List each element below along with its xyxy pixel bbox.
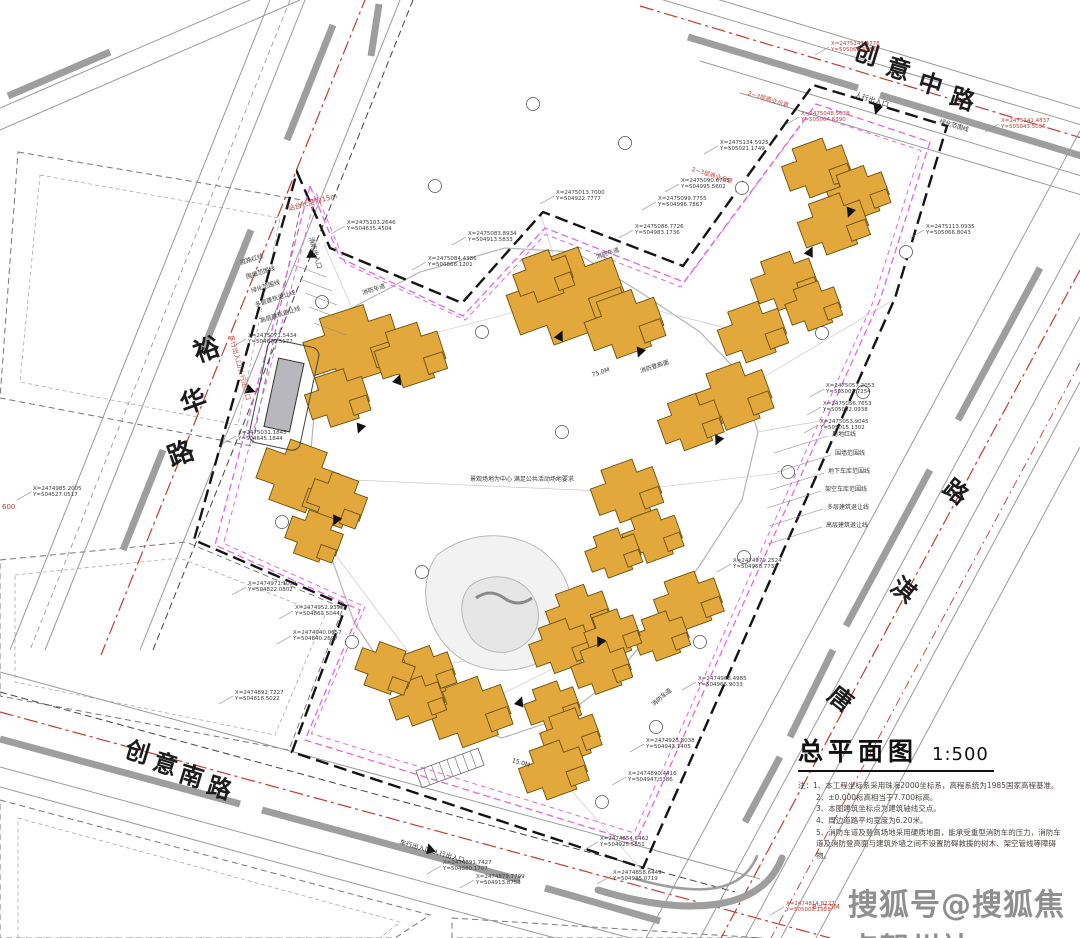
survey-point-circle bbox=[527, 98, 540, 111]
survey-point-circle bbox=[650, 721, 663, 734]
coord-label: X=2474890.4416Y=504947.3386 bbox=[628, 771, 677, 784]
leader-line bbox=[619, 230, 633, 238]
leader-line bbox=[774, 436, 828, 453]
coord-label: X=2474985.2005Y=504527.0517 bbox=[33, 486, 82, 499]
leader-line bbox=[770, 473, 824, 490]
survey-point-circle bbox=[416, 566, 429, 579]
leader-line bbox=[768, 527, 822, 544]
leader-line bbox=[682, 682, 696, 690]
parking-group bbox=[416, 748, 484, 787]
parcel-inner-line bbox=[18, 818, 400, 938]
annotation-label: B=7.5M bbox=[812, 903, 840, 911]
coord-label: X=2475083.8934Y=504913.5833 bbox=[468, 231, 517, 244]
leader-line bbox=[460, 880, 474, 888]
coord-label: X=2475147.4778Y=505068.3583 bbox=[831, 41, 880, 54]
leader-line bbox=[807, 407, 821, 415]
drawing-title: 总平面图 bbox=[798, 732, 918, 768]
coord-label: X=2475031.1845Y=504645.1844 bbox=[238, 430, 287, 443]
leader-line bbox=[232, 587, 246, 595]
coord-label: X=2475056.7653Y=505002.0938 bbox=[823, 401, 872, 414]
survey-point-circle bbox=[782, 466, 795, 479]
leader-line bbox=[910, 230, 924, 238]
legend-label: 高层建筑退让线 bbox=[826, 520, 868, 529]
legend-label: 架空车库范围线 bbox=[825, 484, 867, 493]
coord-label: X=2474891.7427Y=504880.1707 bbox=[443, 860, 492, 873]
leader-line bbox=[769, 509, 823, 526]
legend-label: 地下车库范围线 bbox=[828, 466, 870, 475]
coord-label: X=2475141.4837Y=505043.5055 bbox=[1001, 118, 1050, 131]
coord-label: X=2475071.5434Y=504679.5172 bbox=[248, 333, 297, 346]
annotation-label: 600 bbox=[2, 503, 15, 511]
leader-line bbox=[767, 491, 821, 508]
leader-line bbox=[331, 226, 345, 234]
leader-line bbox=[810, 389, 824, 397]
parking-slot-line bbox=[439, 762, 445, 779]
watermark: 搜狐号@搜狐焦点贺州站 bbox=[848, 880, 1080, 938]
coord-label: X=2475113.0935Y=505066.8043 bbox=[926, 224, 975, 237]
coord-label: X=2474854.6462Y=504925.5851 bbox=[600, 836, 649, 849]
construction-line bbox=[324, 244, 352, 308]
coord-label: X=2474952.9398Y=504863.5044 bbox=[295, 605, 344, 618]
survey-point-circle bbox=[900, 246, 913, 259]
coord-label: X=2475099.7755Y=504996.7867 bbox=[658, 196, 707, 209]
leader-line bbox=[412, 262, 426, 270]
entrance-arrow-icon bbox=[353, 423, 366, 436]
note-line: 2、±0.000标高相当于7.700标高。 bbox=[816, 792, 1062, 804]
leader-line bbox=[219, 696, 233, 704]
landscape-feature bbox=[462, 577, 539, 653]
coord-label: X=2474971.1092Y=504822.0802 bbox=[248, 581, 297, 594]
leader-line bbox=[452, 237, 466, 245]
leader-line bbox=[642, 202, 656, 210]
survey-point-circle bbox=[556, 426, 569, 439]
gatehouse bbox=[264, 358, 304, 432]
parking-slot-line bbox=[462, 754, 468, 771]
parcel-boundary bbox=[0, 800, 430, 938]
survey-point-circle bbox=[736, 182, 749, 195]
coord-label: X=2474979.2524Y=504960.7733 bbox=[733, 558, 782, 571]
parcel-boundary bbox=[452, 918, 762, 938]
drawing-notes: 注：1、本工程坐标系采用珠海2000坐标系，高程系统为1985国家高程基准。 2… bbox=[798, 780, 1062, 861]
road-line-edge bbox=[45, 0, 305, 650]
leader-line bbox=[815, 47, 829, 55]
survey-point-circle bbox=[429, 180, 442, 193]
road-line-band bbox=[880, 95, 1080, 157]
leader-line bbox=[584, 842, 598, 850]
leader-line bbox=[17, 492, 31, 500]
road-line-edge bbox=[0, 0, 300, 130]
coord-label: X=2474892.7227Y=504818.5022 bbox=[235, 690, 284, 703]
survey-point-circle bbox=[276, 516, 289, 529]
annotation-label: 景观场地为中心 满足公共活动场地要求 bbox=[470, 474, 574, 483]
note-line: 5、消防车道及登高场地采用硬质地面，能承受重型消防车的压力，消防车道及消防登高面… bbox=[816, 827, 1062, 862]
leader-line bbox=[612, 777, 626, 785]
note-line: 3、本图建筑坐标点为建筑轴线交点。 bbox=[816, 803, 1062, 815]
survey-point-circle bbox=[476, 326, 489, 339]
coord-label: X=2474940.0657Y=504840.2697 bbox=[293, 630, 342, 643]
survey-point-circle bbox=[694, 636, 707, 649]
coord-label: X=2475057.2053Y=505007.7254 bbox=[826, 383, 875, 396]
coord-label: X=2475086.7726Y=504983.1736 bbox=[635, 224, 684, 237]
road-line-edge bbox=[0, 0, 250, 108]
coord-label: X=2474923.8038Y=504943.1405 bbox=[646, 738, 695, 751]
leader-line bbox=[540, 196, 554, 204]
leader-line bbox=[717, 564, 731, 572]
parking-slot-line bbox=[447, 760, 453, 777]
title-row: 总平面图 1:500 bbox=[798, 732, 994, 772]
coord-label: X=2474968.4985Y=504966.9033 bbox=[698, 676, 747, 689]
road-line-edge bbox=[0, 767, 630, 938]
survey-point-circle bbox=[346, 636, 359, 649]
leader-line bbox=[704, 146, 718, 154]
coord-label: X=2474858.6449Y=504935.0719 bbox=[613, 870, 662, 883]
drawing-scale: 1:500 bbox=[932, 744, 989, 765]
legend-label: 围墙范围线 bbox=[835, 448, 865, 457]
survey-point-circle bbox=[619, 137, 632, 150]
survey-point-circle bbox=[816, 327, 829, 340]
site-plan-canvas: 创意中路裕华路创意南路路淇唐X=2475103.2646Y=504635.450… bbox=[0, 0, 1080, 938]
coord-label: X=2475134.5925Y=505021.1749 bbox=[720, 140, 769, 153]
parking-slot-line bbox=[470, 751, 476, 768]
road-line-band bbox=[123, 450, 163, 550]
leader-line bbox=[597, 876, 611, 884]
leader-line bbox=[427, 866, 441, 874]
note-line: 4、周边道路平均宽度为6.20米。 bbox=[816, 815, 1062, 827]
leader-line bbox=[665, 184, 679, 192]
coord-label: X=2475048.5038Y=505004.6390 bbox=[801, 111, 850, 124]
legend-label: 多层建筑退让线 bbox=[827, 502, 869, 511]
road-line-band bbox=[287, 25, 333, 140]
parking-slot-line bbox=[455, 757, 461, 774]
note-line: 注：1、本工程坐标系采用珠海2000坐标系，高程系统为1985国家高程基准。 bbox=[798, 780, 1062, 792]
title-block: 总平面图 1:500 注：1、本工程坐标系采用珠海2000坐标系，高程系统为19… bbox=[798, 732, 1078, 861]
coord-label: X=2475084.4386Y=504868.1201 bbox=[428, 256, 477, 269]
road-line-band bbox=[958, 268, 1040, 420]
survey-point-circle bbox=[596, 796, 609, 809]
road-line-dashg bbox=[30, 0, 290, 650]
leader-line bbox=[770, 907, 784, 915]
legend-label: 用地红线 bbox=[832, 429, 856, 438]
leader-line bbox=[277, 636, 291, 644]
road-line-band bbox=[790, 650, 833, 737]
coord-label: X=2475103.2646Y=504635.4504 bbox=[347, 220, 396, 233]
leader-line bbox=[300, 279, 332, 291]
coord-label: X=2475013.7000Y=504922.7777 bbox=[556, 190, 605, 203]
road-line-band bbox=[745, 757, 780, 822]
road-line-band bbox=[371, 4, 379, 56]
leader-line bbox=[279, 611, 293, 619]
construction-line bbox=[758, 421, 820, 432]
coord-label: X=2474879.7799Y=504913.8753 bbox=[476, 874, 525, 887]
leader-line bbox=[630, 744, 644, 752]
road-line-band bbox=[846, 470, 930, 626]
